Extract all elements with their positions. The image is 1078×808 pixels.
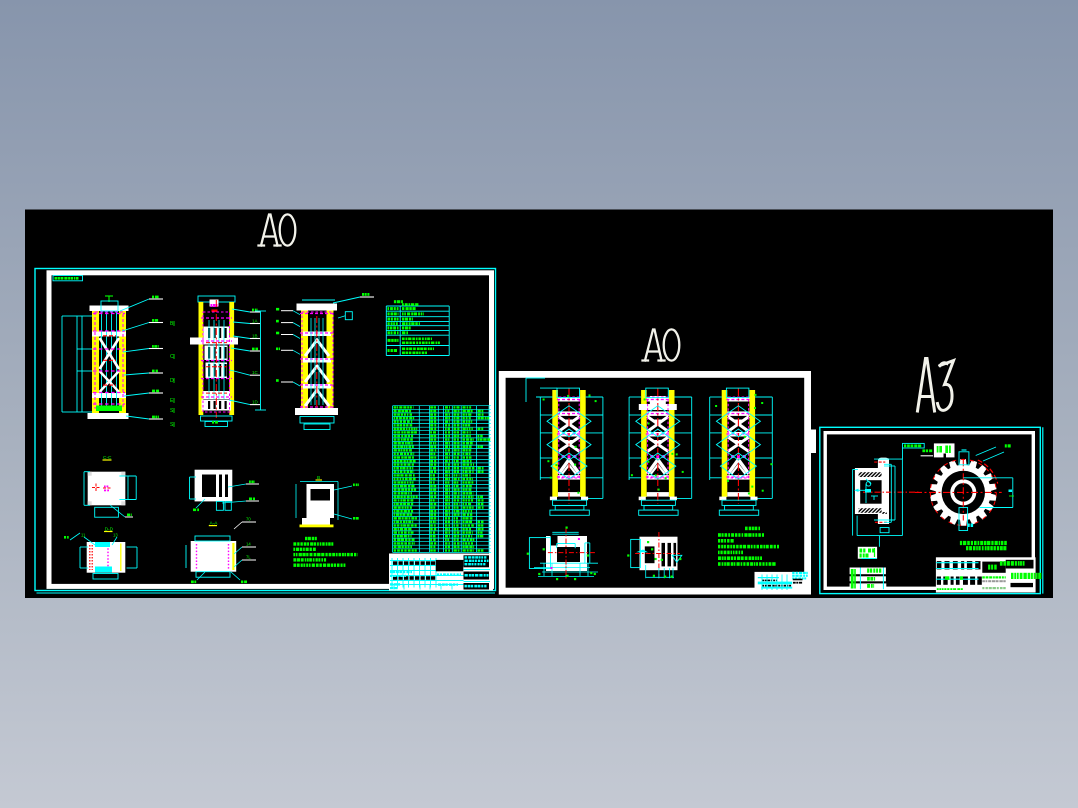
svg-text:7L: 7L [246,555,251,560]
svg-text:D: D [170,378,174,384]
svg-text:1D: 1D [252,399,259,404]
svg-text:70: 70 [246,517,251,522]
svg-text:11: 11 [81,533,86,538]
svg-text:14: 14 [246,542,251,547]
svg-text:1B: 1B [252,333,258,338]
svg-text:1C: 1C [252,370,259,375]
svg-text:C: C [170,354,174,360]
svg-text:13: 13 [113,533,118,538]
svg-text:1A: 1A [252,318,258,323]
